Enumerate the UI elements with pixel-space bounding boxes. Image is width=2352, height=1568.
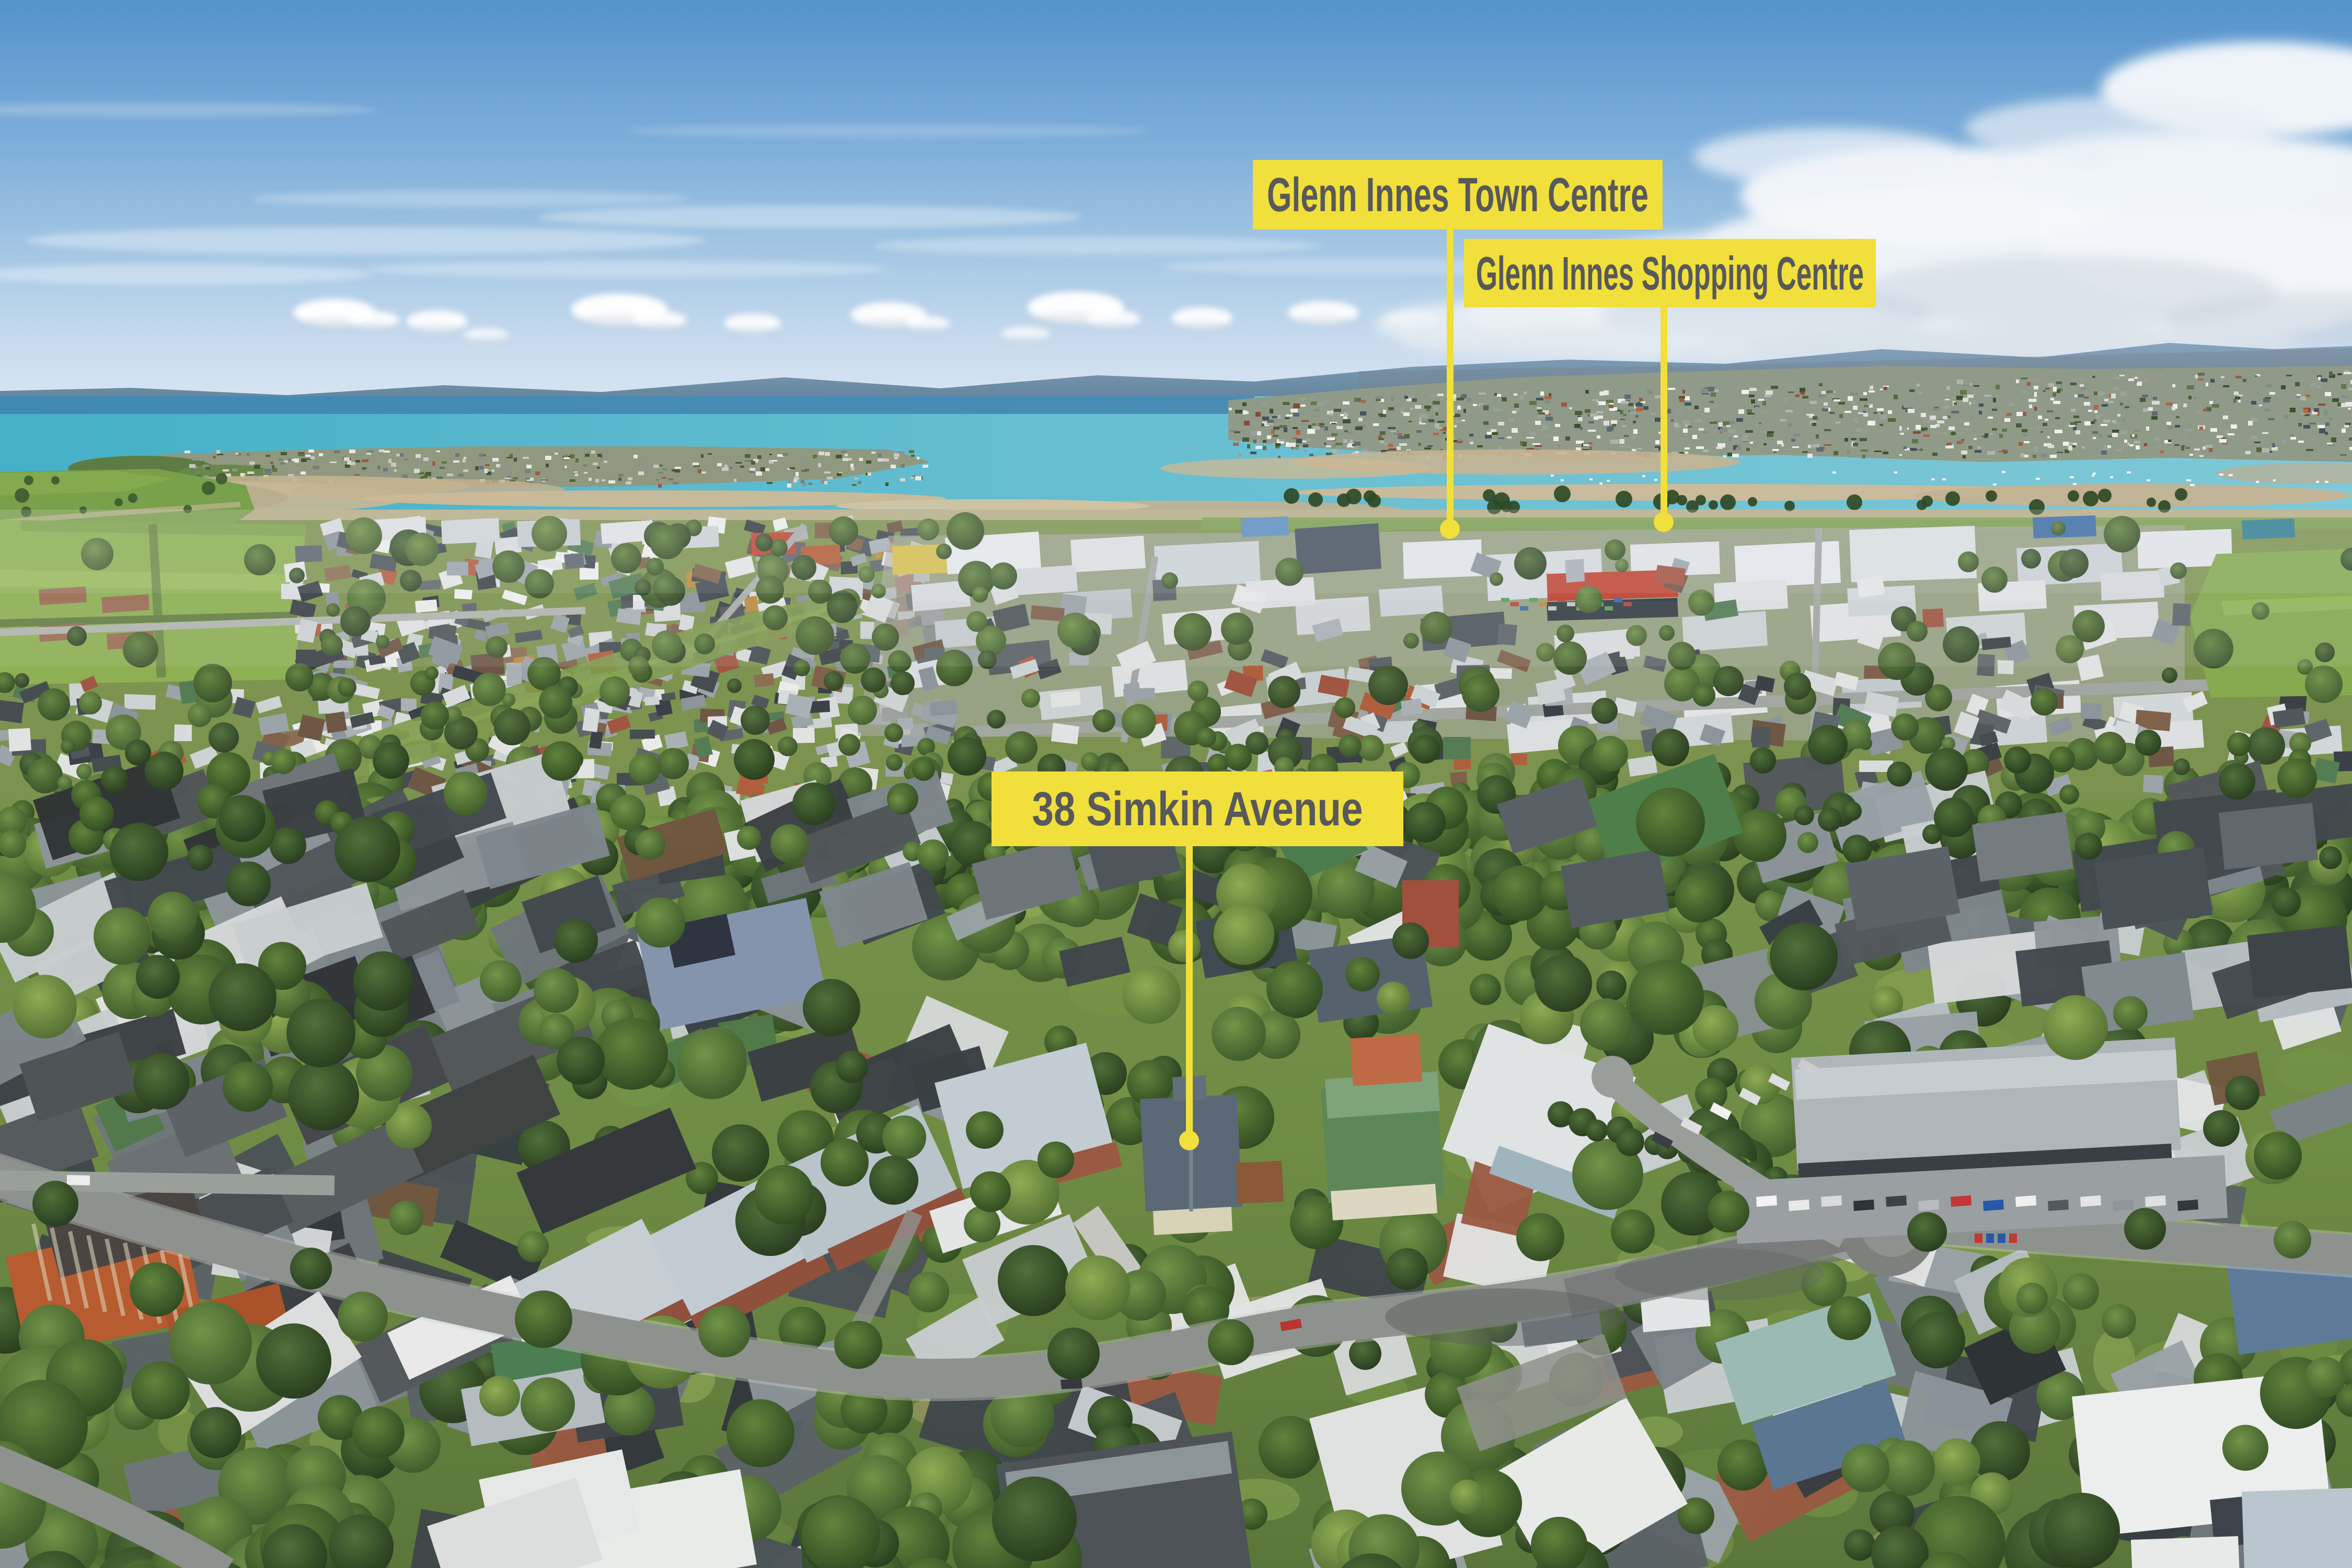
svg-text:Glenn Innes Town Centre: Glenn Innes Town Centre [1267,168,1648,222]
svg-text:38 Simkin Avenue: 38 Simkin Avenue [1032,782,1363,836]
svg-text:Glenn Innes Shopping Centre: Glenn Innes Shopping Centre [1476,248,1864,300]
